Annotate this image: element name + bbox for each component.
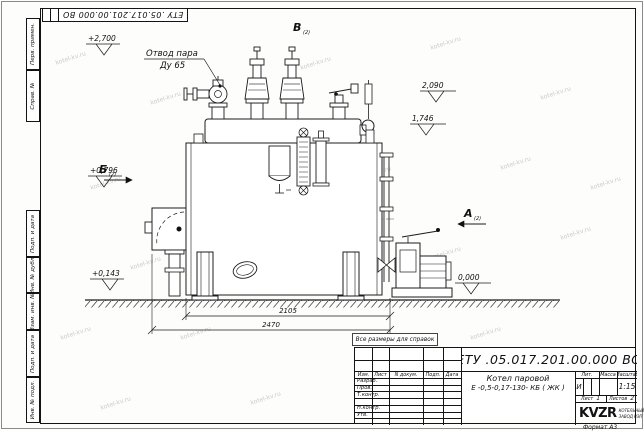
row-razrab: Разраб. bbox=[355, 378, 389, 385]
lit-value: И bbox=[575, 378, 583, 395]
title-block-doc-number: ЕТУ .05.017.201.00.000 ВО bbox=[461, 348, 637, 371]
elevation-label: +0,143 bbox=[92, 269, 120, 278]
elevation-label: 0,000 bbox=[458, 273, 480, 282]
row-nkontr: Н.контр. bbox=[355, 405, 389, 412]
col-header-podp: Подп. bbox=[423, 371, 443, 378]
product-name: Котел паровой bbox=[487, 374, 550, 384]
lever-safety-device bbox=[329, 84, 358, 119]
sheets-header: Листов bbox=[609, 396, 627, 402]
view-marker-b: Б bbox=[99, 163, 107, 176]
col-header-data: Дата bbox=[443, 371, 461, 378]
scale-value: 1:15 bbox=[617, 378, 637, 395]
row-utv: Утв. bbox=[355, 412, 389, 419]
reference-note: Все размеры для справок bbox=[352, 333, 438, 346]
company-name-line2: ЗАВОД РЭП bbox=[619, 414, 644, 419]
row-tkontr: Т.контр. bbox=[355, 391, 389, 398]
view-marker-a-ref: (2) bbox=[474, 216, 481, 222]
view-marker-b-ref: (2) bbox=[109, 172, 116, 178]
elevation-label: +2,700 bbox=[88, 34, 116, 43]
scale-header: Масштаб bbox=[617, 371, 637, 378]
dimension-label: 2105 bbox=[279, 307, 297, 315]
row-prov: Пров. bbox=[355, 385, 389, 392]
steam-outlet-valve bbox=[184, 76, 227, 119]
sheet-header: Лист bbox=[581, 396, 593, 402]
thermometer bbox=[365, 80, 372, 119]
elevation-label: 1,746 bbox=[412, 114, 434, 123]
steam-drum bbox=[194, 119, 374, 143]
elevation-label: 2,090 bbox=[422, 81, 444, 90]
col-header-izm: Изм. bbox=[355, 371, 372, 378]
steam-outlet-callout-line2: Ду 65 bbox=[159, 61, 185, 71]
safety-valve-2 bbox=[280, 47, 304, 119]
view-marker-v: В bbox=[293, 21, 301, 34]
dimension-label: 2470 bbox=[262, 321, 280, 329]
col-header-list: Лист bbox=[372, 371, 389, 378]
title-block: ЕТУ .05.017.201.00.000 ВО Изм. Лист N до… bbox=[354, 347, 636, 424]
view-marker-v-ref: (2) bbox=[303, 30, 310, 36]
product-name-cell: Котел паровой Е -0,5-0,17-130- КБ ( ЖК ) bbox=[461, 371, 575, 395]
company-name: КОТЕЛЬНЫЙ ЗАВОД РЭП bbox=[619, 408, 644, 418]
col-header-doc: N докум. bbox=[389, 371, 423, 378]
product-code: Е -0,5-0,17-130- КБ ( ЖК ) bbox=[471, 384, 564, 393]
burner bbox=[145, 208, 186, 296]
company-logo-cell: KVZR КОТЕЛЬНЫЙ ЗАВОД РЭП bbox=[575, 402, 637, 425]
company-logo-text: KVZR bbox=[579, 406, 617, 421]
safety-valve-1 bbox=[245, 47, 269, 119]
feed-pump bbox=[392, 228, 452, 297]
sheet-value: 1 bbox=[596, 395, 600, 402]
sheets-value: 2 bbox=[630, 395, 634, 402]
mass-header: Масса bbox=[599, 371, 617, 378]
lit-header: Лит. bbox=[575, 371, 599, 378]
water-level-gauge bbox=[297, 128, 310, 195]
sheets-cell: Листов 2 bbox=[606, 395, 637, 402]
steam-outlet-callout-line1: Отвод пара bbox=[146, 49, 198, 59]
view-marker-a: А bbox=[463, 207, 473, 220]
ground-line bbox=[85, 300, 560, 308]
sheet-cell: Лист 1 bbox=[575, 395, 606, 402]
